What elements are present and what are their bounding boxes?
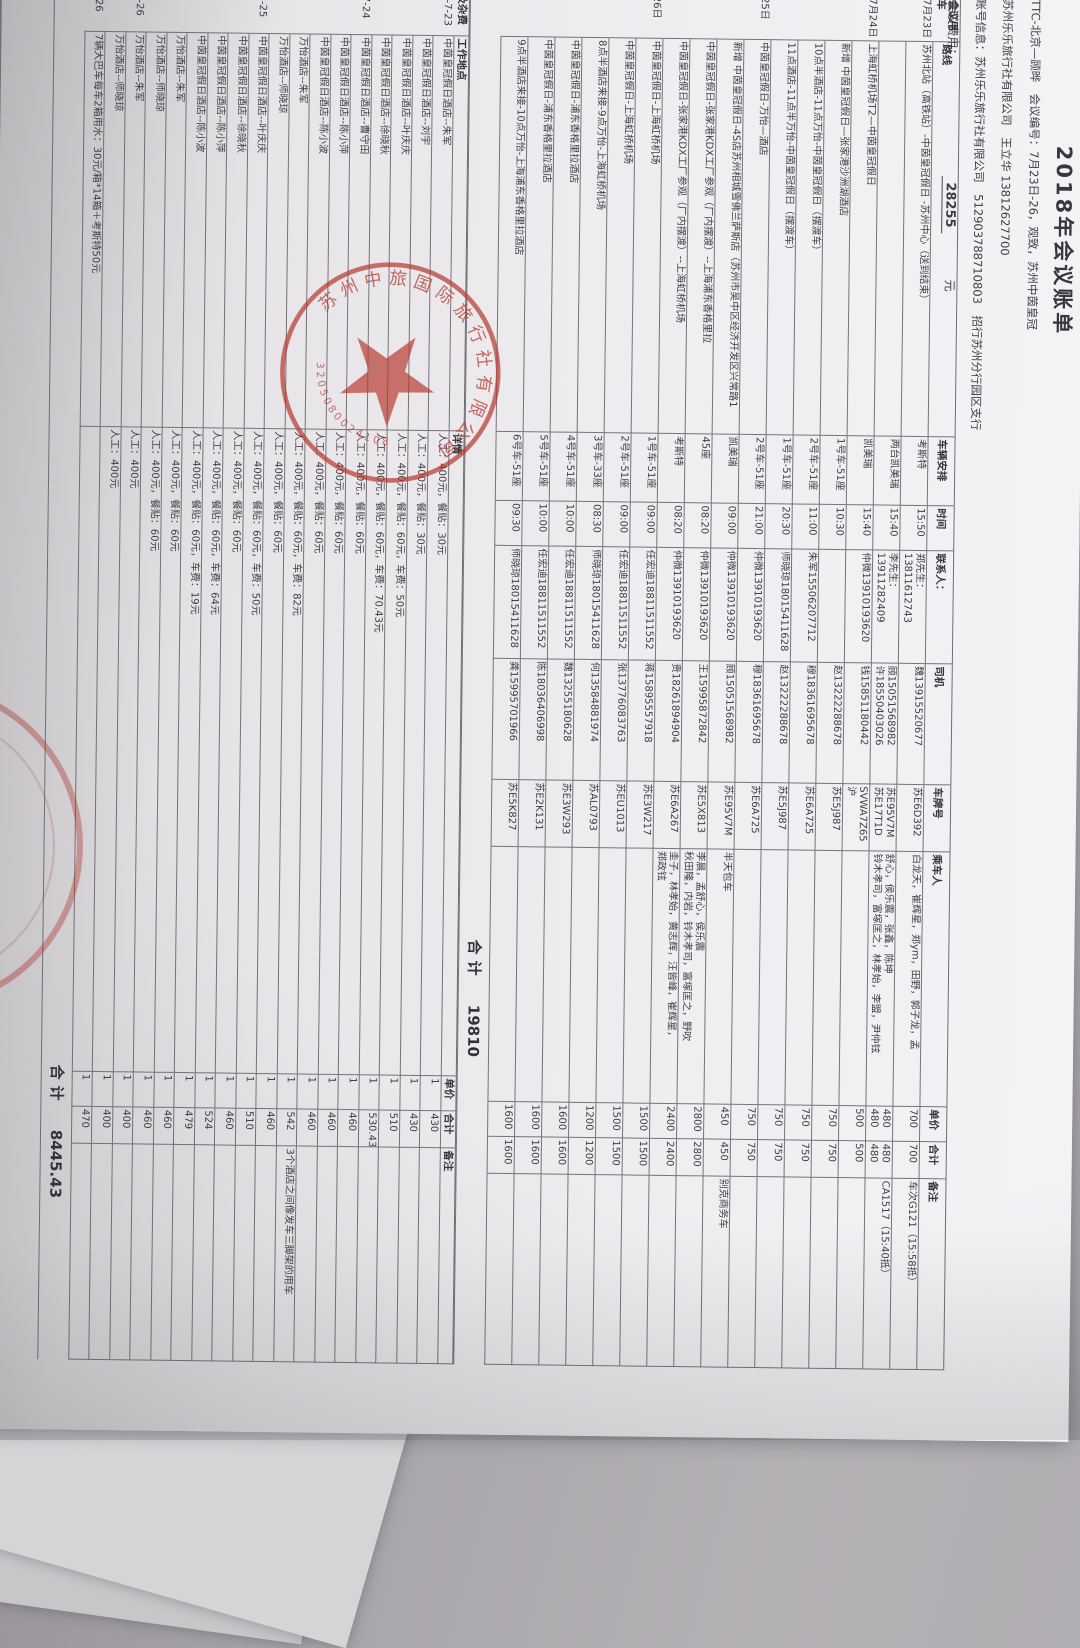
cell-plate: 苏E95V7M 苏E17T1D [869, 784, 897, 851]
misc-total-label: 合计 [47, 1064, 66, 1106]
cell-driver: 穆18361695678 [735, 662, 763, 783]
header-total: 合计 [919, 1142, 946, 1179]
cell-date [289, 0, 310, 35]
cell-vehicle: 两台凯美瑞 [873, 436, 901, 505]
cell-total: 430 [419, 1111, 440, 1148]
cell-total: 400 [91, 1107, 112, 1144]
cell-time: 10:30 [818, 505, 846, 550]
cell-date: -7-26 [125, 0, 146, 33]
cell-total: 750 [757, 1140, 784, 1177]
cell-note [355, 1147, 378, 1363]
invoice-tables: 会议用车 路线 车辆安排 时间 联系人： 司机 车牌号 乘车人 单价 合计 备注… [37, 0, 961, 1370]
cell-note [484, 1174, 513, 1365]
cell-passengers [758, 850, 788, 1105]
cell-note: 别克商务车 [700, 1176, 729, 1367]
cell-note [538, 1174, 567, 1365]
cell-route: 中茵皇冠假日-浦东香格里拉酒店 [523, 37, 555, 432]
cell-note [619, 1175, 648, 1366]
cell-note [835, 1178, 864, 1369]
cell-passengers: 半天包车 [704, 849, 734, 1104]
cell-driver: 龚15995701966 [492, 659, 520, 780]
cell-note [171, 1145, 194, 1361]
cell-total: 530.43 [358, 1110, 379, 1147]
cell-note [68, 1144, 91, 1360]
header-plate: 车牌号 [923, 785, 951, 852]
cell-date [187, 0, 208, 33]
cell-date [105, 0, 126, 32]
cell-time: 15:50 [899, 506, 927, 551]
cell-note [592, 1175, 621, 1366]
cell-vehicle: 5号车-51座 [522, 432, 550, 501]
cell-note [89, 1144, 112, 1360]
cell-total: 2800 [676, 1139, 703, 1176]
cell-unit-price: 1 [133, 1072, 154, 1107]
cell-route: 11点酒店-11点半万怡-中茵皇冠假日（摆渡车） [766, 40, 798, 435]
cell-unit-price: 750 [757, 1105, 784, 1140]
header-driver: 司机 [924, 664, 952, 785]
cell-unit-price: 1 [256, 1074, 277, 1109]
cell-passengers [542, 847, 572, 1102]
cell-note [150, 1145, 173, 1361]
cell-driver: 顾15051568982 [708, 661, 736, 782]
cell-unit-price: 1600 [514, 1102, 541, 1137]
misc-header-note: 备注 [437, 1148, 455, 1364]
cell-total: 750 [811, 1141, 838, 1178]
header-contact: 联系人： [925, 551, 953, 664]
cell-date [825, 0, 853, 41]
cell-note [253, 1146, 276, 1362]
cell-date [207, 0, 228, 34]
cell-note [376, 1147, 399, 1363]
misc-fee-table: 及杂费 工作地点 详情 单价 合计 备注 8-7-23 中茵皇冠假日酒店--朱军… [68, 0, 470, 1364]
cell-route: 中茵皇冠假日-张家港KDX工厂参观（厂内摆渡）--上海浦东香格里拉 [685, 39, 717, 434]
cell-unit-price: 1500 [622, 1103, 649, 1138]
cell-total: 542 [276, 1109, 297, 1146]
cell-unit-price: 500 [838, 1106, 865, 1141]
cell-driver: 张13776083763 [600, 660, 628, 781]
cell-total: 460 [214, 1108, 235, 1145]
header-line-meeting: TTC-北京—顾晔 会议编号：7月23日-26，观致，苏州中茵皇冠 [1024, 0, 1044, 330]
invoice-paper: 2018年会议账单 TTC-北京—顾晔 会议编号：7月23日-26，观致，苏州中… [0, 0, 1080, 1442]
cell-contact [817, 550, 845, 663]
cell-date [717, 0, 745, 40]
cell-contact: 任宏迪18811511552 [547, 546, 575, 659]
cell-total: 524 [194, 1108, 215, 1145]
cell-note [294, 1146, 317, 1362]
cell-vehicle: 考斯特 [657, 434, 685, 503]
cell-route: 上海虹桥机场T2—中茵皇冠假日 [847, 41, 879, 436]
cell-note [511, 1174, 540, 1365]
cell-unit-price: 1 [174, 1073, 195, 1108]
cell-plate: 苏E6D392 [896, 785, 924, 852]
cell-driver: 赵13222288678 [762, 662, 790, 783]
page-title: 2018年会议账单 [1048, 146, 1080, 337]
cell-vehicle: 1号车-51座 [765, 435, 793, 504]
cell-unit-price: 750 [784, 1105, 811, 1140]
cell-total: 1600 [541, 1137, 568, 1174]
cell-total: 500 [838, 1141, 865, 1178]
header-unit-price: 单价 [919, 1107, 946, 1142]
cell-date [269, 0, 290, 34]
cell-contact: 仲微13910193620 [709, 548, 737, 661]
cell-route: 中茵皇冠假日-上海虹桥机场 [631, 39, 663, 434]
cell-note [417, 1148, 440, 1364]
cell-unit-price: 1600 [487, 1102, 514, 1137]
misc-total-value: 8445.43 [46, 1130, 65, 1199]
cell-date: 26日 [636, 0, 664, 39]
cell-note [130, 1144, 153, 1360]
cell-unit-price: 1 [71, 1072, 92, 1107]
cell-contact: 师晓琼18015411628 [574, 547, 602, 660]
cell-date [392, 0, 413, 36]
misc-header-section-label: 及杂费 [453, 0, 469, 36]
header-line-agency: 苏州乐乐旅行社有限公司 王立华 13812627700 [997, 0, 1016, 256]
cell-contact: 李先生：13911282409 [871, 550, 899, 663]
cell-total: 1500 [595, 1138, 622, 1175]
cell-total: 750 [784, 1140, 811, 1177]
cell-time: 21:00 [737, 504, 765, 549]
cell-passengers [623, 848, 653, 1103]
cell-note [191, 1145, 214, 1361]
cell-vehicle: 6号车-51座 [495, 432, 523, 501]
cell-total: 460 [255, 1109, 276, 1146]
cell-date [166, 0, 187, 33]
cell-time: 09:00 [629, 502, 657, 547]
cell-vehicle: 1号车-51座 [630, 433, 658, 502]
cell-passengers: 舒心，侯乐震，张鑫，陈坤 铃木孝司，富塚匡之，林孝始，李盟，尹仲铉 [866, 851, 896, 1106]
cell-contact: 任宏迪18811511552 [520, 546, 548, 659]
cell-date [412, 0, 433, 36]
header-note: 备注 [916, 1179, 945, 1370]
cell-unit-price: 1 [153, 1073, 174, 1108]
cell-note [808, 1178, 837, 1369]
cell-route: 新增 中茵皇冠假日—张家港沙洲湖酒店 [820, 41, 852, 436]
header-time: 时间 [926, 506, 953, 551]
cell-time: 10:00 [548, 501, 576, 546]
cell-vehicle: 2号车-51座 [603, 433, 631, 502]
header-vehicle: 车辆安排 [927, 437, 955, 506]
cell-vehicle: 45座 [684, 434, 712, 503]
cell-date [371, 0, 392, 36]
cell-date: 7月23日 [906, 0, 934, 42]
cell-vehicle: 考斯特 [900, 437, 928, 506]
cell-time: 09:30 [494, 501, 522, 546]
cell-total: 470 [71, 1107, 92, 1144]
cell-plate: 苏E3W293 [545, 780, 573, 847]
cell-unit-price: 450 [703, 1104, 730, 1139]
cell-contact: 师晓琼18015411628 [493, 546, 521, 659]
cell-time: 09:00 [602, 502, 630, 547]
cell-plate: 苏E5X813 [680, 782, 708, 849]
cell-note [314, 1147, 337, 1363]
cell-plate: 苏E5J987 [815, 784, 843, 851]
cell-vehicle: 凯美瑞 [711, 434, 739, 503]
cell-date: 25日 [744, 0, 772, 40]
cell-total: 460 [296, 1109, 317, 1146]
cell-note [335, 1147, 358, 1363]
cell-note [109, 1144, 132, 1360]
cell-time: 10:00 [521, 501, 549, 546]
cell-vehicle: 2号车-51座 [738, 435, 766, 504]
cell-time: 08:30 [575, 502, 603, 547]
misc-header-unit-price: 单价 [440, 1076, 456, 1111]
cell-unit-price: 1200 [568, 1103, 595, 1138]
cell-date: 8-7-23 [433, 0, 454, 36]
cell-note [565, 1175, 594, 1366]
stamp-ring-text: 苏州中旅国际旅行社有限公司 [0, 677, 33, 1042]
cell-total: 450 [703, 1139, 730, 1176]
cell-passengers [731, 850, 761, 1105]
cell-passengers [488, 847, 518, 1102]
cell-time: 15:40 [872, 505, 900, 550]
cell-date [879, 0, 907, 42]
cell-route: 中茵皇冠假日-上海虹桥机场 [604, 38, 636, 433]
cell-date [310, 0, 331, 35]
cell-date [528, 0, 556, 38]
header-section-label: 会议用车 [933, 0, 960, 42]
cell-plate: SVWA7Z65 沪 [842, 784, 870, 851]
header-passengers: 乘车人 [920, 852, 950, 1107]
cell-plate: 苏E2K131 [518, 780, 546, 847]
cell-total: 700 [892, 1142, 919, 1179]
cell-driver: 魏13255180628 [546, 659, 574, 780]
cell-total: 430 [399, 1111, 420, 1148]
cell-note [754, 1177, 783, 1368]
header-route: 路线 [928, 42, 960, 437]
cell-total: 480 480 [865, 1141, 892, 1178]
cell-date [771, 0, 799, 40]
cell-unit-price: 1500 [595, 1103, 622, 1138]
cell-passengers: 圭子，林孝始，黄志辉，汪皆峰，崔辉星， 郑政铉 [650, 849, 680, 1104]
cell-total: 2400 [649, 1139, 676, 1176]
cell-unit-price: 1 [194, 1073, 215, 1108]
cell-route: 新增 中茵皇冠假日-4S店苏州相城雪佛兰萨斯店（苏州市吴中区经济开发区兴常路1 [712, 39, 744, 434]
cell-contact: 仲微13910193620 [682, 548, 710, 661]
cell-date [501, 0, 529, 37]
cell-note: 3个酒店之间像发车三脚架的用车 [273, 1146, 296, 1362]
cell-date [555, 0, 583, 38]
cell-plate: 苏E3W217 [626, 781, 654, 848]
cell-unit-price: 1 [338, 1075, 359, 1110]
cell-contact: 仲微13910193620 [844, 550, 872, 663]
cell-plate: 苏E95V7M [707, 782, 735, 849]
vehicle-table-body: 7月23日 苏州北站（高铁站）-中茵皇冠假日 -苏州中心（送到结束） 考斯特 1… [484, 0, 933, 1370]
cell-date: 7-26 [84, 0, 105, 32]
cell-total: 400 [112, 1107, 133, 1144]
cell-contact: 仲微13910193620 [655, 548, 683, 661]
cell-vehicle: 4号车-51座 [549, 432, 577, 501]
cell-route: 中茵皇冠假日-浦东香格里拉酒店 [550, 38, 582, 433]
cell-total: 510 [378, 1110, 399, 1147]
cell-total: 460 [337, 1110, 358, 1147]
cell-date [330, 0, 351, 35]
cell-contact: 任宏迪18811511552 [628, 547, 656, 660]
cell-total: 460 [317, 1110, 338, 1147]
cell-plate: 苏E6A725 [788, 783, 816, 850]
cell-unit-price: 1 [379, 1075, 400, 1110]
cell-unit-price: 1 [276, 1074, 297, 1109]
cell-note: CA1517（15:40抵） [862, 1178, 891, 1369]
photo-of-invoice: { "header": { "title": "2018年会议账单", "lin… [0, 0, 1080, 1440]
cell-passengers [785, 850, 815, 1105]
cell-route: 中茵皇冠假日-万怡—酒店 [739, 40, 771, 435]
cell-plate: 苏AL0793 [572, 781, 600, 848]
cell-driver: 陈18036406998 [519, 659, 547, 780]
cell-vehicle: 1号车-51座 [819, 436, 847, 505]
cell-total: 1600 [514, 1137, 541, 1174]
cell-passengers [812, 851, 842, 1106]
cell-driver: 贵18261894904 [654, 661, 682, 782]
cell-time: 09:00 [710, 503, 738, 548]
cell-passengers: 李晨，孟舒心，侯乐震 秋田隆，内岩，铃木孝司，富塚匡之，野吹 [677, 849, 707, 1104]
cell-plate: 苏EU1013 [599, 781, 627, 848]
cell-unit-price: 480 480 [865, 1106, 892, 1141]
cell-date [582, 0, 610, 38]
cell-unit-price: 1 [92, 1072, 113, 1107]
cell-passengers [839, 851, 869, 1106]
cell-vehicle: 2号车-51座 [792, 435, 820, 504]
cell-total: 1600 [487, 1137, 514, 1174]
cell-note [232, 1146, 255, 1362]
cell-passengers [596, 848, 626, 1103]
cell-unit-price: 1 [215, 1073, 236, 1108]
cell-total: 510 [235, 1109, 256, 1146]
cell-time: 15:40 [845, 505, 873, 550]
cell-note [212, 1145, 235, 1361]
cell-note [727, 1177, 756, 1368]
cell-date: 7月24日 [852, 0, 880, 41]
cell-unit-price: 1 [358, 1075, 379, 1110]
cell-plate: 苏E5K827 [491, 780, 519, 847]
cell-date [228, 0, 249, 34]
cell-plate: 苏E6A267 [653, 782, 681, 849]
cell-total: 750 [730, 1140, 757, 1177]
cell-passengers [569, 848, 599, 1103]
cell-date [663, 0, 691, 39]
cell-note [781, 1177, 810, 1368]
cell-note [646, 1176, 675, 1367]
cell-unit-price: 1 [235, 1074, 256, 1109]
cell-passengers: 白龙天，崔辉星，郑ym，田野，郭子龙，孟 [893, 852, 923, 1107]
cell-total: 460 [132, 1107, 153, 1144]
cell-date [690, 0, 718, 39]
invoice-header: 2018年会议账单 TTC-北京—顾晔 会议编号：7月23日-26，观致，苏州中… [1069, 0, 1080, 1398]
cell-vehicle: 凯美瑞 [846, 436, 874, 505]
cell-plate: 苏E5J987 [761, 783, 789, 850]
cell-note: 车次G121（15:58抵） [889, 1179, 918, 1370]
cell-unit-price: 1 [420, 1076, 441, 1111]
cell-total: 1500 [622, 1138, 649, 1175]
cell-unit-price: 1 [112, 1072, 133, 1107]
cell-passengers [515, 847, 545, 1102]
cell-date: -7-24 [351, 0, 372, 35]
cell-time: 08:20 [683, 503, 711, 548]
cell-driver: 钱15851180442 [843, 663, 871, 784]
cell-driver: 王15995872842 [681, 661, 709, 782]
cell-unit-price: 1 [317, 1075, 338, 1110]
cell-contact: 仲微13910193620 [736, 549, 764, 662]
cell-contact: 任宏迪18811511552 [601, 547, 629, 660]
vehicle-total-value: 19810 [464, 1005, 483, 1057]
cell-contact: 师晓琼18015411628 [763, 549, 791, 662]
cell-driver: 何13584881974 [573, 660, 601, 781]
cell-unit-price: 750 [811, 1106, 838, 1141]
cell-route [874, 41, 906, 436]
cell-total: 460 [153, 1108, 174, 1145]
cell-route: 苏州北站（高铁站）-中茵皇冠假日 -苏州中心（送到结束） [901, 42, 933, 437]
header-line-account: 账号信息：苏州乐乐旅行社有限公司 512903788710803 招行苏州分行园… [968, 0, 989, 431]
cell-unit-price: 1 [399, 1076, 420, 1111]
cell-time: 08:20 [656, 503, 684, 548]
svg-text:苏州中旅国际旅行社有限公司: 苏州中旅国际旅行社有限公司 [0, 677, 33, 1042]
cell-driver: 穆18361695678 [789, 662, 817, 783]
misc-header-total: 合计 [440, 1111, 456, 1148]
cell-date [609, 0, 637, 39]
cell-time: 20:30 [764, 504, 792, 549]
cell-unit-price: 1600 [541, 1102, 568, 1137]
cell-date [798, 0, 826, 41]
cell-note [673, 1176, 702, 1367]
cell-route: 中茵皇冠假日-张家港KDX工厂参观（厂内摆渡）--上海虹桥机场 [658, 39, 690, 434]
cell-unit-price: 2400 [649, 1104, 676, 1139]
cell-contact: 郑先生：13811612743 [898, 551, 926, 664]
cell-driver: 魏13915520677 [897, 664, 925, 785]
cell-driver: 顾15051568982 许18550403026 [870, 663, 898, 784]
cell-date: -7-25 [248, 0, 269, 34]
cell-unit-price: 750 [730, 1105, 757, 1140]
misc-table-body: 8-7-23 中茵皇冠假日酒店--朱军 人工：400元，餐贴：30元 1 430… [68, 0, 454, 1364]
cell-unit-price: 1 [297, 1074, 318, 1109]
cell-unit-price: 2800 [676, 1104, 703, 1139]
cell-date [146, 0, 167, 33]
cell-route: 10点半酒店-11点万怡-中茵皇冠假日（摆渡车） [793, 40, 825, 435]
vehicle-total-label: 合计 [465, 939, 484, 981]
cell-route: 8点半酒店来接-9点万怡-上海虹桥机场 [577, 38, 609, 433]
cell-plate: 苏E6A725 [734, 783, 762, 850]
cell-vehicle: 3号车-33座 [576, 433, 604, 502]
cell-total: 1200 [568, 1138, 595, 1175]
vehicle-table: 会议用车 路线 车辆安排 时间 联系人： 司机 车牌号 乘车人 单价 合计 备注… [484, 0, 961, 1370]
cell-contact: 朱军15506207712 [790, 549, 818, 662]
cell-unit-price: 700 [892, 1107, 919, 1142]
cell-total: 479 [173, 1108, 194, 1145]
cell-time: 11:00 [791, 504, 819, 549]
cell-driver: 赵13222288678 [816, 663, 844, 784]
cell-route: 9点半酒店来接-10点万怡-上海浦东香格里拉酒店 [496, 37, 528, 432]
cell-note [396, 1148, 419, 1364]
cell-driver: 蒋15895557918 [627, 660, 655, 781]
